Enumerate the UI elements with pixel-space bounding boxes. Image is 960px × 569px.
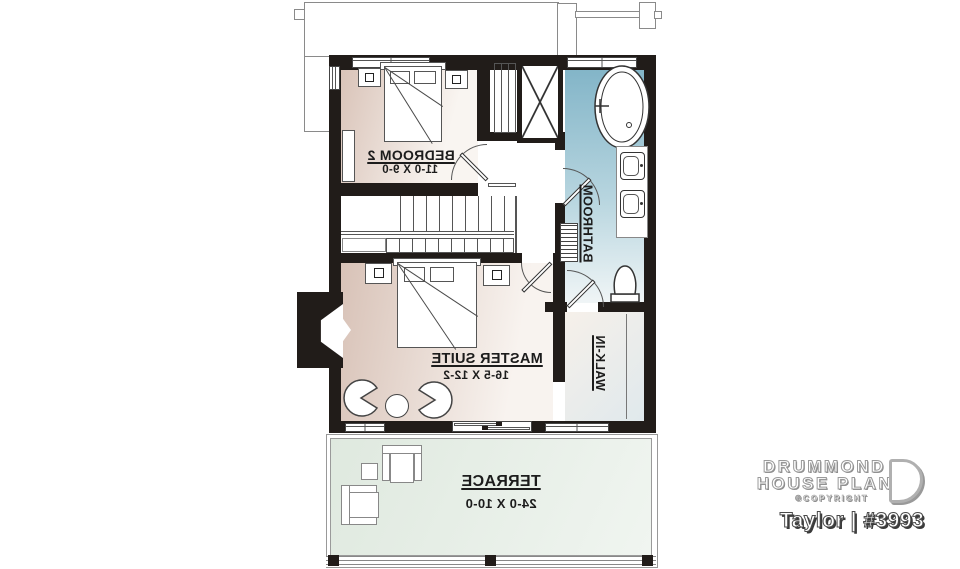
roof-outline-left — [304, 55, 305, 132]
patio-chair-arm — [382, 453, 390, 481]
sink-basin — [623, 194, 639, 214]
bed2-lamp — [365, 73, 374, 82]
terrace-label: TERRACE — [436, 473, 566, 491]
beam-nub — [654, 11, 662, 19]
armchair-icon — [416, 381, 454, 419]
window-bedroom2-left — [329, 66, 340, 90]
master-suite-label: MASTER SUITE — [422, 351, 552, 367]
sink-faucet-dot — [640, 202, 643, 205]
bathroom-label: BATHROOM — [581, 174, 596, 274]
beam — [575, 11, 643, 18]
stair-landing — [342, 238, 386, 252]
master-lamp — [374, 268, 384, 278]
patio-sofa-arm — [349, 517, 377, 525]
sliding-door-stop — [482, 426, 488, 430]
closet-bifold — [494, 63, 516, 133]
patio-sofa-seat — [349, 492, 379, 518]
patio-chair-seat — [390, 453, 414, 483]
branding-block: DRUMMOND HOUSE PLANS ©COPYRIGHT Taylor |… — [752, 458, 952, 533]
stair-treads — [386, 238, 514, 253]
sink-basin — [623, 156, 639, 176]
roof-outline — [304, 2, 559, 57]
bedroom2-label: BEDROOM 2 — [351, 147, 471, 163]
sliding-door-stop — [496, 422, 502, 426]
linen-shelves — [560, 223, 578, 262]
wall-master-walkin-divider — [553, 263, 565, 382]
master-suite-dims: 16-5 X 12-2 — [416, 368, 536, 382]
bed2-pillow — [414, 71, 436, 84]
stair-rail-line — [341, 231, 514, 232]
patio-chair-arm — [414, 453, 422, 481]
walkin-shelf-line — [626, 314, 627, 419]
stair-balusters — [388, 196, 514, 231]
wall-bedroom2-bottom — [338, 183, 478, 196]
stair-rail-line — [341, 234, 514, 235]
terrace-post — [328, 555, 339, 566]
side-table — [385, 394, 409, 418]
terrace-dims: 24-0 X 10-0 — [436, 496, 566, 511]
roof-outline-left-return — [304, 131, 330, 132]
floor-plan-canvas: BEDROOM 2 11-0 X 9-0 MASTER SUITE 16-5 X… — [0, 0, 960, 569]
bedroom2-dims: 11-0 X 9-0 — [355, 164, 465, 176]
shower-closet-xbox — [517, 61, 563, 143]
window-walkin-bottom — [545, 423, 609, 432]
window-master-bottom-left — [345, 423, 385, 432]
terrace-post — [642, 555, 653, 566]
wall-left — [329, 70, 341, 425]
plan-title: Taylor | #3993 — [752, 509, 952, 533]
sliding-door-panel — [454, 423, 498, 426]
walkin-label: WALK-IN — [593, 320, 607, 406]
bed2-lamp — [452, 75, 461, 84]
terrace-post — [485, 555, 496, 566]
toilet-icon — [607, 262, 643, 304]
bathtub-icon — [591, 63, 651, 151]
sliding-door-panel — [486, 427, 530, 430]
master-pillow — [430, 267, 454, 282]
wall-bedroom2-right — [477, 61, 490, 141]
roof-nub — [294, 9, 305, 20]
beam-post-left — [557, 3, 577, 56]
stair-top-rail — [488, 183, 516, 187]
master-lamp — [492, 270, 502, 280]
brand-copyright: ©COPYRIGHT — [752, 494, 952, 503]
patio-table — [361, 463, 378, 480]
wall-bath-bottom-left — [545, 302, 567, 312]
sink-faucet-dot — [640, 164, 643, 167]
armchair-icon — [342, 379, 380, 417]
